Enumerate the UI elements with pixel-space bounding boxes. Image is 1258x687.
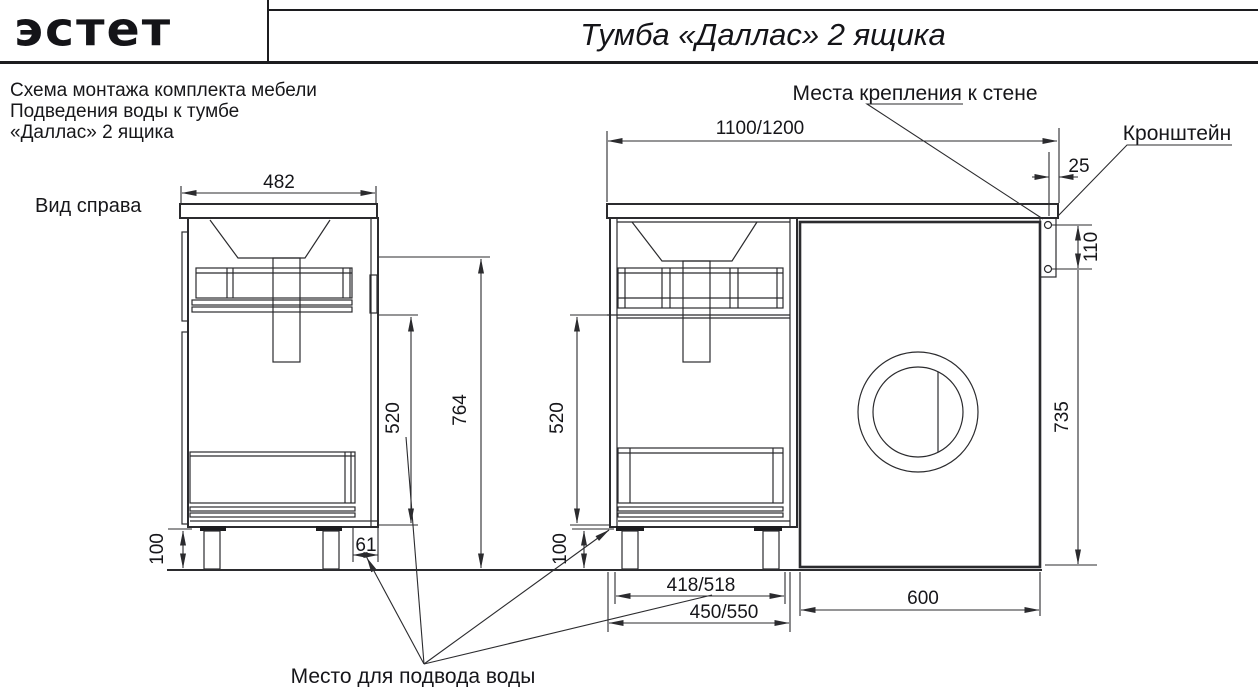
dim-450-550-label: 450/550 [690, 602, 759, 623]
water-leader-2 [406, 437, 424, 664]
drawing-page: эстет Тумба «Даллас» 2 ящика Схема монта… [0, 0, 1258, 687]
leg [763, 531, 779, 569]
water-leader-4 [424, 595, 712, 664]
bottom-strip [190, 507, 355, 511]
bracket-screw-hole [1045, 266, 1052, 273]
foot-pad [316, 526, 342, 531]
washer-door-outer [858, 352, 978, 472]
leg [323, 531, 339, 569]
dim-25-label: 25 [1068, 156, 1089, 177]
side-view-dimensions: 482 520 764 100 61 [147, 172, 490, 568]
dim-600-label: 600 [907, 588, 939, 609]
bottom-strip [190, 513, 355, 517]
dim-61-label: 61 [355, 535, 376, 556]
upper-drawer-box-front [618, 268, 783, 308]
leg [622, 531, 638, 569]
dim-482-label: 482 [263, 172, 295, 193]
wall-mount-leader [867, 104, 1043, 219]
sink-bowl-section [210, 220, 330, 258]
sink-bowl-front [632, 222, 757, 261]
cabinet-body-front [610, 218, 797, 527]
dim-100-left-label: 100 [147, 533, 168, 565]
water-supply-label: Место для подвода воды [291, 665, 536, 687]
countertop-side [180, 204, 377, 218]
bottom-strip [618, 513, 783, 517]
dim-735-label: 735 [1052, 401, 1073, 433]
side-view-drawing [180, 204, 378, 569]
dim-764-label: 764 [450, 394, 471, 426]
technical-drawing-canvas: 482 520 764 100 61 1100/1200 25 [0, 0, 1258, 687]
water-leader-1 [367, 558, 424, 664]
wall-bracket [1040, 218, 1056, 277]
bracket-label: Кронштейн [1123, 122, 1231, 145]
washing-machine [800, 222, 1040, 567]
front-view-dimensions: 1100/1200 25 110 735 520 100 418/518 [547, 118, 1102, 632]
foot-pad [754, 526, 782, 531]
foot-pad [200, 526, 226, 531]
bottom-strip [618, 507, 783, 511]
cabinet-body-side [188, 218, 378, 527]
dim-1100-1200-label: 1100/1200 [716, 118, 804, 139]
washer-door-inner [873, 367, 963, 457]
drawer-slide-strip [192, 307, 352, 312]
front-view-drawing [607, 204, 1058, 569]
dim-110-label: 110 [1081, 232, 1102, 262]
lower-drawer-box-side [190, 452, 355, 503]
dim-520-right-label: 520 [547, 402, 568, 434]
drain-pipe-front [683, 261, 710, 362]
foot-pad [616, 526, 644, 531]
leg [204, 531, 220, 569]
countertop-front [607, 204, 1058, 218]
drawer-slide-strip [192, 300, 352, 305]
dim-520-left-label: 520 [383, 402, 404, 434]
bracket-screw-hole [1045, 222, 1052, 229]
dim-418-518-label: 418/518 [667, 575, 736, 596]
lower-drawer-box-front [618, 448, 783, 503]
water-leader-3 [424, 530, 609, 664]
wall-mount-label: Места крепления к стене [792, 82, 1037, 105]
